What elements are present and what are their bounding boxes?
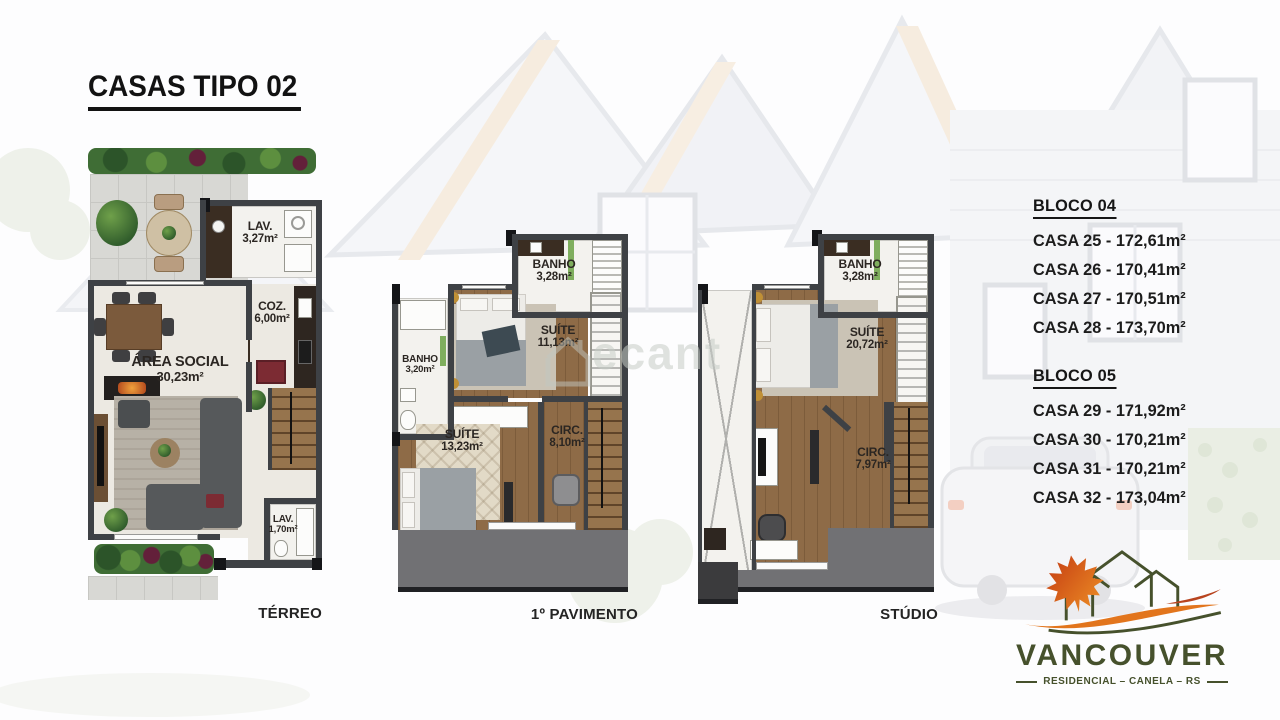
sink bbox=[400, 388, 416, 402]
wall bbox=[200, 200, 206, 282]
lav-basin bbox=[284, 244, 312, 272]
list-item: CASA 30 - 170,21m² bbox=[1033, 425, 1186, 454]
list-item: CASA 28 - 173,70m² bbox=[1033, 313, 1186, 342]
unit-listings: BLOCO 04 CASA 25 - 172,61m² CASA 26 - 17… bbox=[1033, 196, 1192, 512]
blanket bbox=[420, 468, 476, 532]
throw-pillow bbox=[206, 494, 224, 508]
room-label-lav-top: LAV. 3,27m² bbox=[230, 220, 290, 246]
lav-counter bbox=[206, 206, 232, 278]
room-label-lav-bottom: LAV. 1,70m² bbox=[266, 514, 300, 536]
caption-terreo: TÉRREO bbox=[180, 605, 322, 622]
floor-plant bbox=[104, 508, 128, 532]
logo-subtitle-text: RESIDENCIAL – CANELA – RS bbox=[1043, 676, 1201, 687]
caption-pavimento: 1º PAVIMENTO bbox=[470, 606, 638, 623]
kitchen-mat bbox=[256, 360, 286, 384]
roof-below bbox=[828, 528, 934, 592]
window bbox=[764, 285, 810, 289]
sink bbox=[530, 242, 542, 253]
floorplan-pavimento: BANHO 3,28m² BANHO 3,20m² SUÍTE 11,13m² … bbox=[392, 228, 638, 605]
desk-chair bbox=[758, 514, 786, 542]
room-label-coz: COZ. 6,00m² bbox=[246, 300, 298, 326]
swoosh-orange bbox=[1025, 605, 1219, 629]
wall bbox=[214, 560, 322, 568]
wall bbox=[512, 234, 518, 318]
terrace-chair bbox=[154, 256, 184, 272]
wall bbox=[542, 396, 628, 402]
floorplan-terreo: LAV. 3,27m² COZ. 6,00m² ÁREA SOCIAL 30,2… bbox=[88, 148, 322, 600]
room-label-banho: BANHO 3,28m² bbox=[828, 258, 892, 284]
wall bbox=[312, 558, 322, 570]
tv bbox=[758, 438, 766, 476]
caption-studio: STÚDIO bbox=[770, 606, 938, 623]
terrace-planter bbox=[88, 148, 316, 174]
toilet bbox=[400, 410, 416, 430]
window bbox=[462, 285, 506, 289]
maple-leaf-icon bbox=[1042, 551, 1108, 616]
logo-brand-text: VANCOUVER bbox=[1012, 639, 1232, 673]
wall bbox=[512, 234, 628, 240]
block-04: BLOCO 04 CASA 25 - 172,61m² CASA 26 - 17… bbox=[1033, 196, 1192, 342]
wall bbox=[392, 432, 400, 446]
wall bbox=[818, 234, 824, 318]
wall bbox=[752, 290, 756, 588]
wall bbox=[214, 558, 226, 570]
vancouver-logo: VANCOUVER RESIDENCIAL – CANELA – RS bbox=[1012, 548, 1232, 687]
pillow bbox=[460, 298, 488, 311]
dining-chair bbox=[162, 318, 174, 336]
stove bbox=[298, 340, 312, 364]
sofa-chaise bbox=[146, 484, 204, 530]
room-label-banho-left: BANHO 3,20m² bbox=[394, 354, 446, 376]
wall bbox=[198, 534, 220, 540]
stairs bbox=[268, 388, 318, 470]
wall bbox=[512, 312, 628, 318]
roof-below bbox=[398, 530, 628, 592]
window bbox=[488, 522, 576, 530]
flower-bed bbox=[94, 544, 214, 574]
pillow bbox=[402, 472, 415, 498]
watermark-text: ecant bbox=[592, 326, 722, 380]
roof-step bbox=[698, 562, 738, 604]
wall bbox=[392, 284, 400, 304]
walkway-pavers bbox=[88, 576, 218, 600]
wall bbox=[448, 396, 508, 402]
office-chair bbox=[552, 474, 580, 506]
table-plant bbox=[162, 226, 176, 240]
room-label-circ: CIRC. 8,10m² bbox=[538, 424, 596, 450]
stairs bbox=[584, 402, 622, 530]
room-label-banho-top: BANHO 3,28m² bbox=[522, 258, 586, 284]
block-05: BLOCO 05 CASA 29 - 171,92m² CASA 30 - 17… bbox=[1033, 366, 1192, 512]
wall bbox=[928, 234, 934, 530]
window bbox=[756, 562, 828, 570]
shower bbox=[400, 300, 446, 330]
logo-subtitle-row: RESIDENCIAL – CANELA – RS bbox=[1012, 676, 1232, 687]
terrace-chair bbox=[154, 194, 184, 210]
wall bbox=[88, 280, 94, 540]
stairs-arrow bbox=[908, 408, 910, 504]
list-item: CASA 26 - 170,41m² bbox=[1033, 255, 1186, 284]
subtitle-rule-left bbox=[1016, 681, 1037, 683]
brochure-canvas: CASAS TIPO 02 ecant bbox=[0, 0, 1280, 720]
floorplan-studio: BANHO 3,28m² SUÍTE 20,72m² CIRC. 7,97m² bbox=[698, 228, 945, 605]
wall bbox=[622, 234, 628, 530]
wall bbox=[818, 312, 934, 318]
room-label-circ: CIRC. 7,97m² bbox=[844, 446, 902, 472]
sink bbox=[836, 242, 848, 253]
lav-sink bbox=[212, 220, 225, 233]
wall bbox=[200, 200, 322, 206]
pillow bbox=[756, 348, 771, 382]
wall bbox=[270, 498, 322, 504]
roof-below bbox=[738, 570, 830, 592]
window bbox=[114, 534, 198, 540]
list-item: CASA 31 - 170,21m² bbox=[1033, 454, 1186, 483]
page-title: CASAS TIPO 02 bbox=[88, 70, 301, 111]
logo-graphic bbox=[1017, 548, 1227, 638]
tv-stand bbox=[810, 430, 819, 484]
room-label-area-social: ÁREA SOCIAL 30,23m² bbox=[122, 354, 238, 385]
dining-table bbox=[106, 304, 162, 350]
block-heading: BLOCO 05 bbox=[1033, 366, 1116, 389]
sliding-door bbox=[126, 281, 204, 285]
sofa bbox=[200, 398, 242, 528]
potted-plant bbox=[96, 200, 138, 246]
list-item: CASA 25 - 172,61m² bbox=[1033, 226, 1186, 255]
stairs-arrow bbox=[290, 392, 292, 464]
kitchen-sink bbox=[298, 298, 312, 318]
armchair bbox=[118, 400, 150, 428]
room-label-suite-main: SUÍTE 13,23m² bbox=[430, 428, 494, 454]
pillow bbox=[756, 308, 771, 342]
wall bbox=[88, 534, 114, 540]
room-label-suite: SUÍTE 20,72m² bbox=[838, 326, 896, 352]
swoosh-red bbox=[1166, 589, 1221, 604]
toilet bbox=[274, 540, 288, 557]
desk bbox=[750, 540, 798, 560]
list-item: CASA 29 - 171,92m² bbox=[1033, 396, 1186, 425]
wall bbox=[392, 290, 398, 530]
detail bbox=[291, 216, 305, 230]
subtitle-rule-right bbox=[1207, 681, 1228, 683]
tv bbox=[97, 426, 104, 486]
list-item: CASA 27 - 170,51m² bbox=[1033, 284, 1186, 313]
wall bbox=[538, 402, 544, 530]
dining-chair bbox=[94, 318, 106, 336]
wall bbox=[448, 290, 454, 436]
dining-chair bbox=[138, 292, 156, 304]
wall bbox=[818, 234, 934, 240]
list-item: CASA 32 - 173,04m² bbox=[1033, 483, 1186, 512]
utility-fixture bbox=[704, 528, 726, 550]
detail bbox=[158, 444, 171, 457]
pillow bbox=[402, 502, 415, 528]
stairs-arrow bbox=[601, 408, 603, 508]
block-heading: BLOCO 04 bbox=[1033, 196, 1116, 219]
dining-chair bbox=[112, 292, 130, 304]
wall bbox=[246, 362, 252, 412]
wall bbox=[316, 200, 322, 568]
watermark-house-icon bbox=[540, 330, 596, 390]
